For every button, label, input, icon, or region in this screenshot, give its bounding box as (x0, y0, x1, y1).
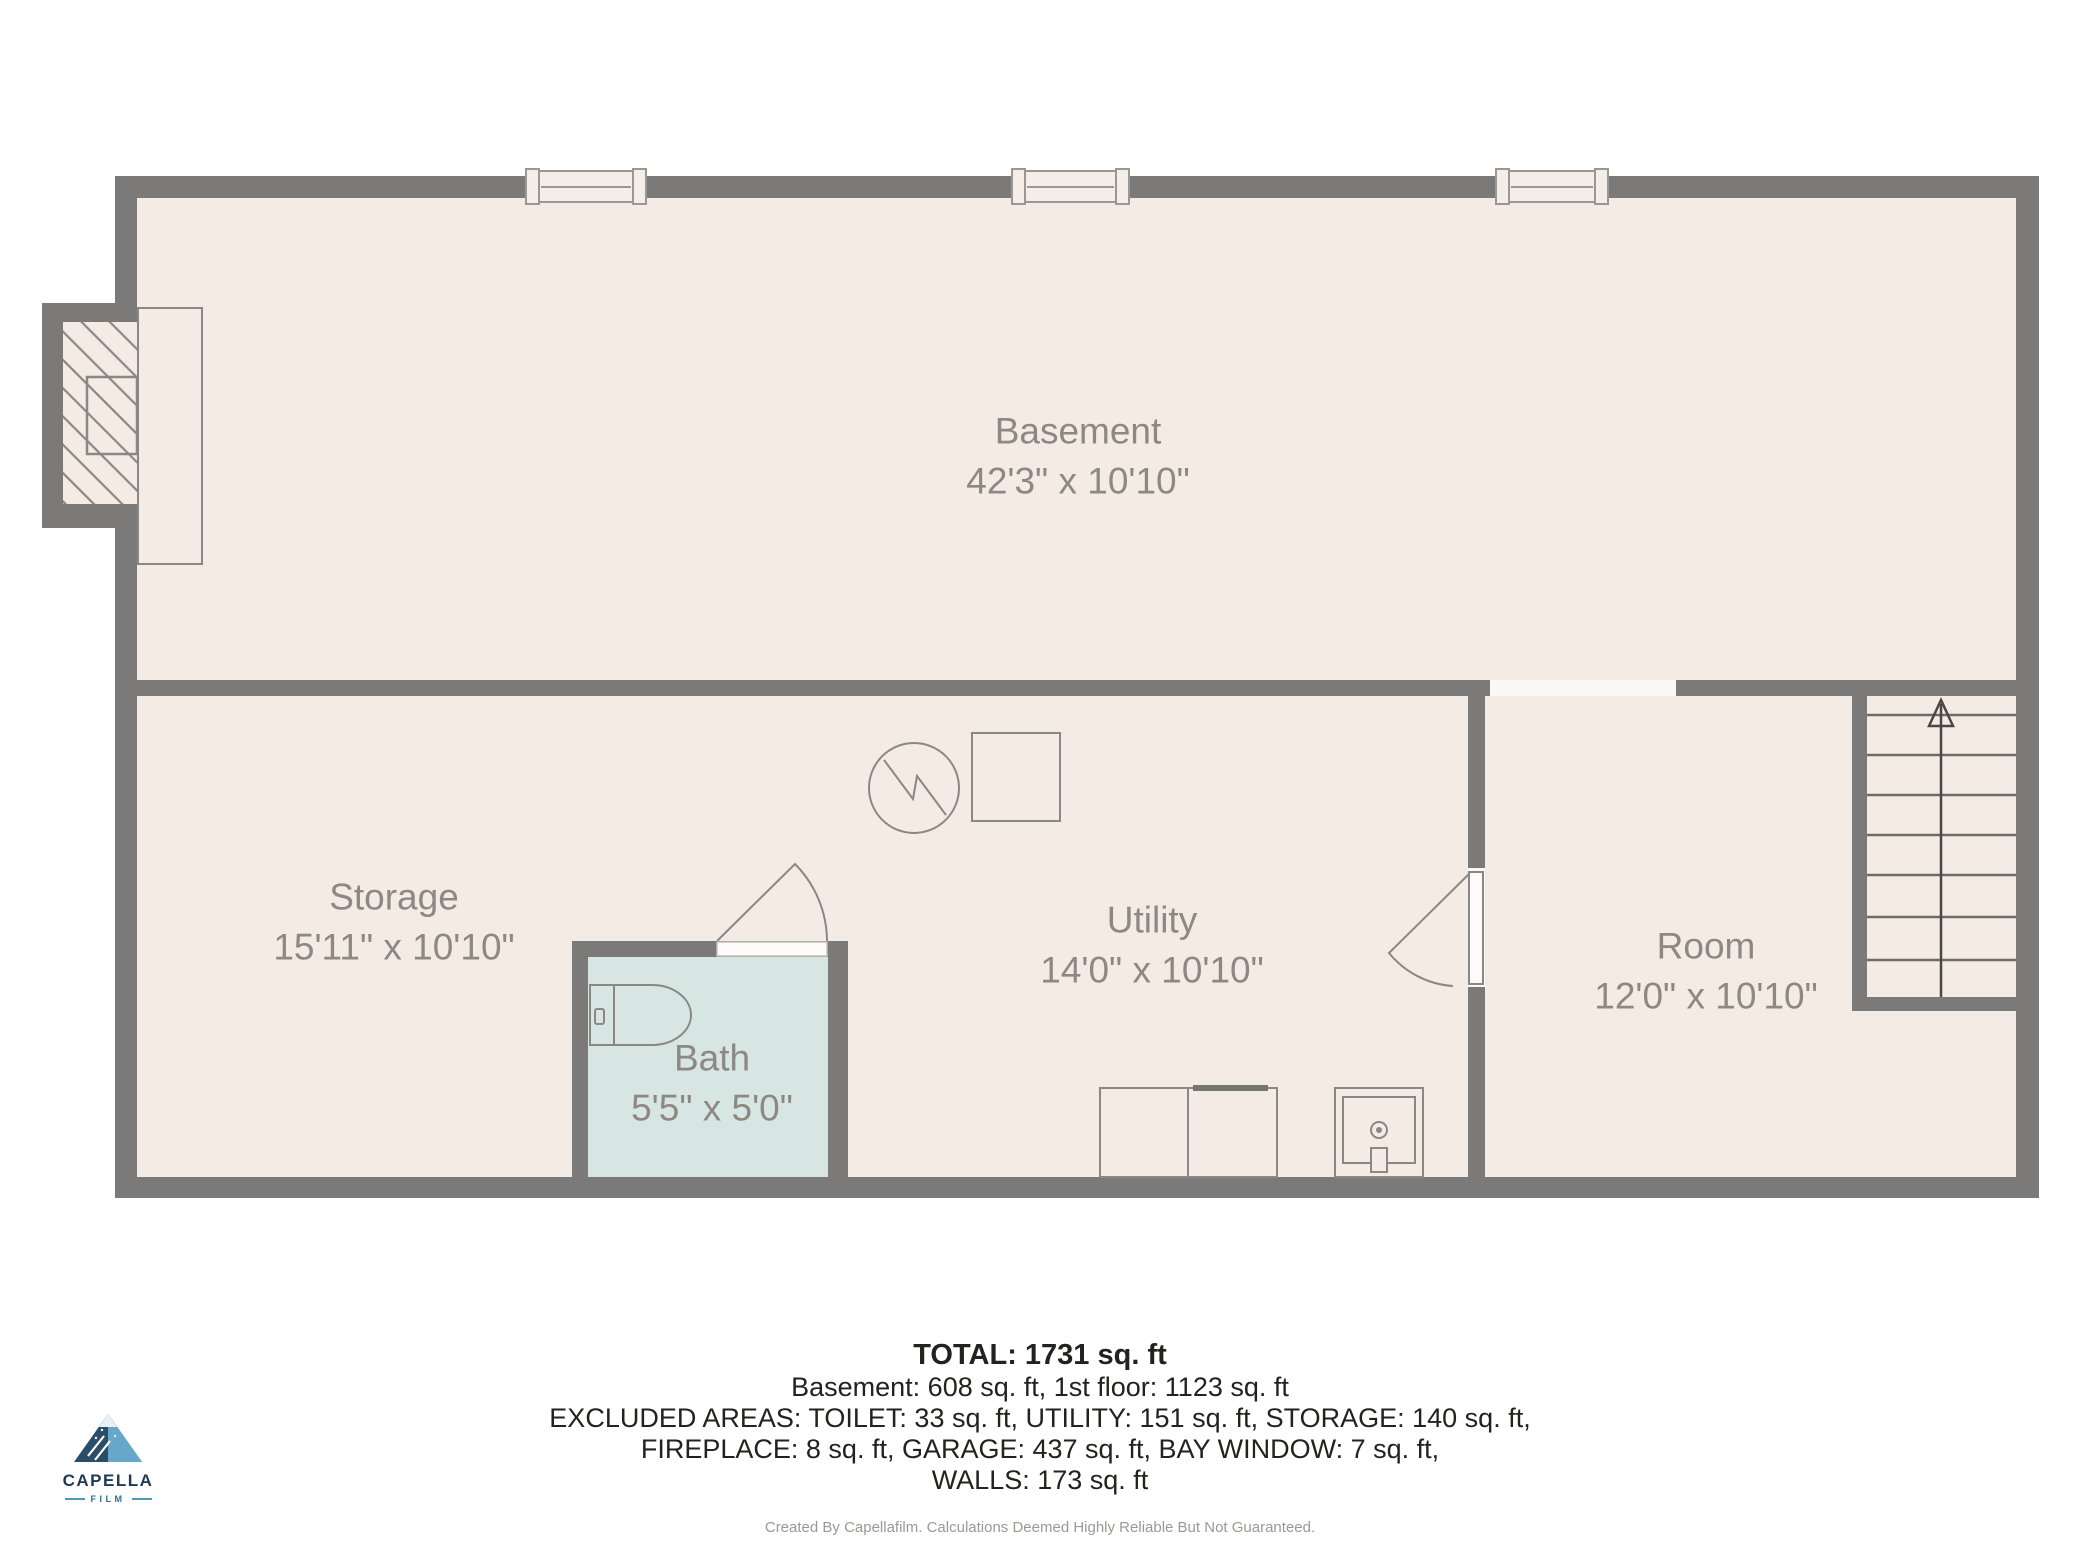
door-leaf (1469, 872, 1483, 984)
logo-rule (65, 1498, 85, 1500)
total-area: TOTAL: 1731 sq. ft (0, 1338, 2080, 1372)
room-dims: 42'3" x 10'10" (966, 456, 1190, 506)
middle-wall (1676, 680, 2016, 696)
logo-rule (132, 1498, 152, 1500)
room-dims: 15'11" x 10'10" (273, 922, 514, 972)
hearth (138, 308, 202, 564)
fireplace (42, 303, 202, 564)
disclaimer: Created By Capellafilm. Calculations Dee… (0, 1512, 2080, 1543)
wall-opening (1490, 680, 1676, 696)
logo-subtitle: FILM (91, 1494, 126, 1504)
area-summary: TOTAL: 1731 sq. ft Basement: 608 sq. ft,… (0, 1338, 2080, 1543)
floorplan-drawing (0, 0, 2080, 1560)
summary-line: Basement: 608 sq. ft, 1st floor: 1123 sq… (0, 1372, 2080, 1403)
summary-line: WALLS: 173 sq. ft (0, 1465, 2080, 1496)
floorplan-page: Basement 42'3" x 10'10" Storage 15'11" x… (0, 0, 2080, 1560)
window-icon (1496, 169, 1608, 204)
window-icon (1012, 169, 1129, 204)
room-dims: 14'0" x 10'10" (1040, 945, 1264, 995)
room-label-room: Room 12'0" x 10'10" (1594, 921, 1818, 1020)
room-dims: 5'5" x 5'0" (631, 1083, 793, 1133)
mountain-logo-icon (60, 1412, 156, 1464)
middle-wall (137, 680, 1490, 696)
room-name: Bath (631, 1033, 793, 1083)
room-name: Basement (966, 406, 1190, 456)
room-name: Utility (1040, 895, 1264, 945)
room-name: Storage (273, 872, 514, 922)
logo-name: CAPELLA (60, 1471, 156, 1491)
logo-subtitle-row: FILM (60, 1494, 156, 1504)
summary-line: EXCLUDED AREAS: TOILET: 33 sq. ft, UTILI… (0, 1403, 2080, 1434)
room-label-utility: Utility 14'0" x 10'10" (1040, 895, 1264, 994)
room-label-bath: Bath 5'5" x 5'0" (631, 1033, 793, 1132)
room-name: Room (1594, 921, 1818, 971)
room-dims: 12'0" x 10'10" (1594, 971, 1818, 1021)
window-icon (526, 169, 646, 204)
room-label-storage: Storage 15'11" x 10'10" (273, 872, 514, 971)
bath-door-opening (717, 942, 827, 956)
room-label-basement: Basement 42'3" x 10'10" (966, 406, 1190, 505)
summary-line: FIREPLACE: 8 sq. ft, GARAGE: 437 sq. ft,… (0, 1434, 2080, 1465)
capella-film-logo: CAPELLA FILM (60, 1412, 156, 1504)
